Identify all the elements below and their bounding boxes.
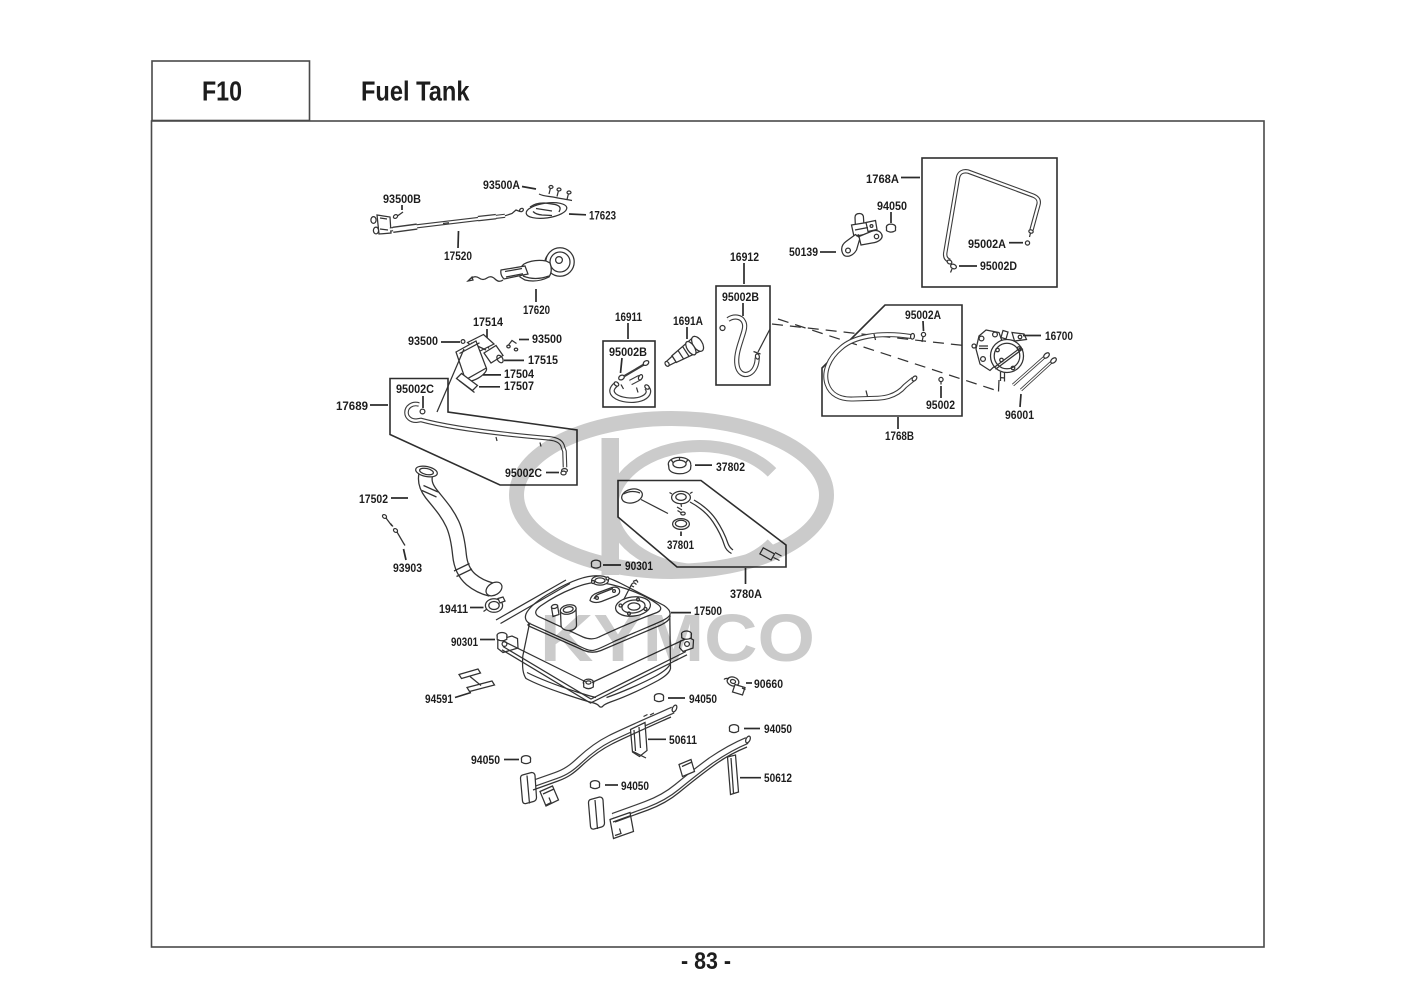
svg-text:16912: 16912 — [730, 250, 759, 264]
svg-text:95002B: 95002B — [609, 345, 647, 359]
svg-text:19411: 19411 — [439, 602, 468, 616]
svg-text:17507: 17507 — [504, 379, 534, 393]
svg-text:37802: 37802 — [716, 460, 745, 474]
svg-text:94591: 94591 — [425, 692, 453, 706]
svg-text:17514: 17514 — [473, 315, 503, 329]
svg-text:F10: F10 — [202, 76, 242, 107]
svg-text:93500: 93500 — [408, 334, 438, 348]
svg-text:17520: 17520 — [444, 249, 472, 263]
svg-text:17689: 17689 — [336, 399, 368, 413]
svg-text:94050: 94050 — [764, 722, 792, 736]
svg-text:94050: 94050 — [621, 779, 649, 793]
svg-text:95002B: 95002B — [722, 290, 759, 304]
svg-text:16911: 16911 — [615, 310, 642, 324]
svg-text:1691A: 1691A — [673, 314, 703, 328]
svg-text:95002A: 95002A — [905, 308, 941, 322]
svg-text:93903: 93903 — [393, 561, 422, 575]
svg-text:KYMCO: KYMCO — [540, 601, 815, 676]
svg-text:95002: 95002 — [926, 398, 955, 412]
svg-text:- 83 -: - 83 - — [681, 948, 731, 975]
svg-text:90660: 90660 — [754, 677, 783, 691]
svg-text:96001: 96001 — [1005, 408, 1034, 422]
svg-text:50139: 50139 — [789, 245, 818, 259]
svg-text:95002A: 95002A — [968, 237, 1006, 251]
svg-text:3780A: 3780A — [730, 587, 762, 601]
svg-text:1768B: 1768B — [885, 429, 914, 443]
svg-text:37801: 37801 — [667, 538, 694, 552]
svg-text:93500B: 93500B — [383, 192, 421, 206]
svg-text:Fuel Tank: Fuel Tank — [361, 76, 470, 107]
svg-text:16700: 16700 — [1045, 329, 1073, 343]
svg-text:17620: 17620 — [523, 303, 550, 317]
svg-text:50612: 50612 — [764, 771, 792, 785]
svg-text:90301: 90301 — [451, 635, 478, 649]
svg-text:95002D: 95002D — [980, 259, 1017, 273]
svg-text:17623: 17623 — [589, 209, 616, 223]
svg-text:17502: 17502 — [359, 492, 388, 506]
svg-text:1768A: 1768A — [866, 172, 899, 186]
svg-text:93500: 93500 — [532, 332, 562, 346]
svg-text:94050: 94050 — [877, 199, 907, 213]
svg-text:50611: 50611 — [669, 733, 697, 747]
svg-text:94050: 94050 — [471, 753, 500, 767]
svg-text:93500A: 93500A — [483, 178, 520, 192]
svg-text:94050: 94050 — [689, 692, 717, 706]
svg-text:95002C: 95002C — [396, 382, 434, 396]
svg-text:17515: 17515 — [528, 353, 558, 367]
